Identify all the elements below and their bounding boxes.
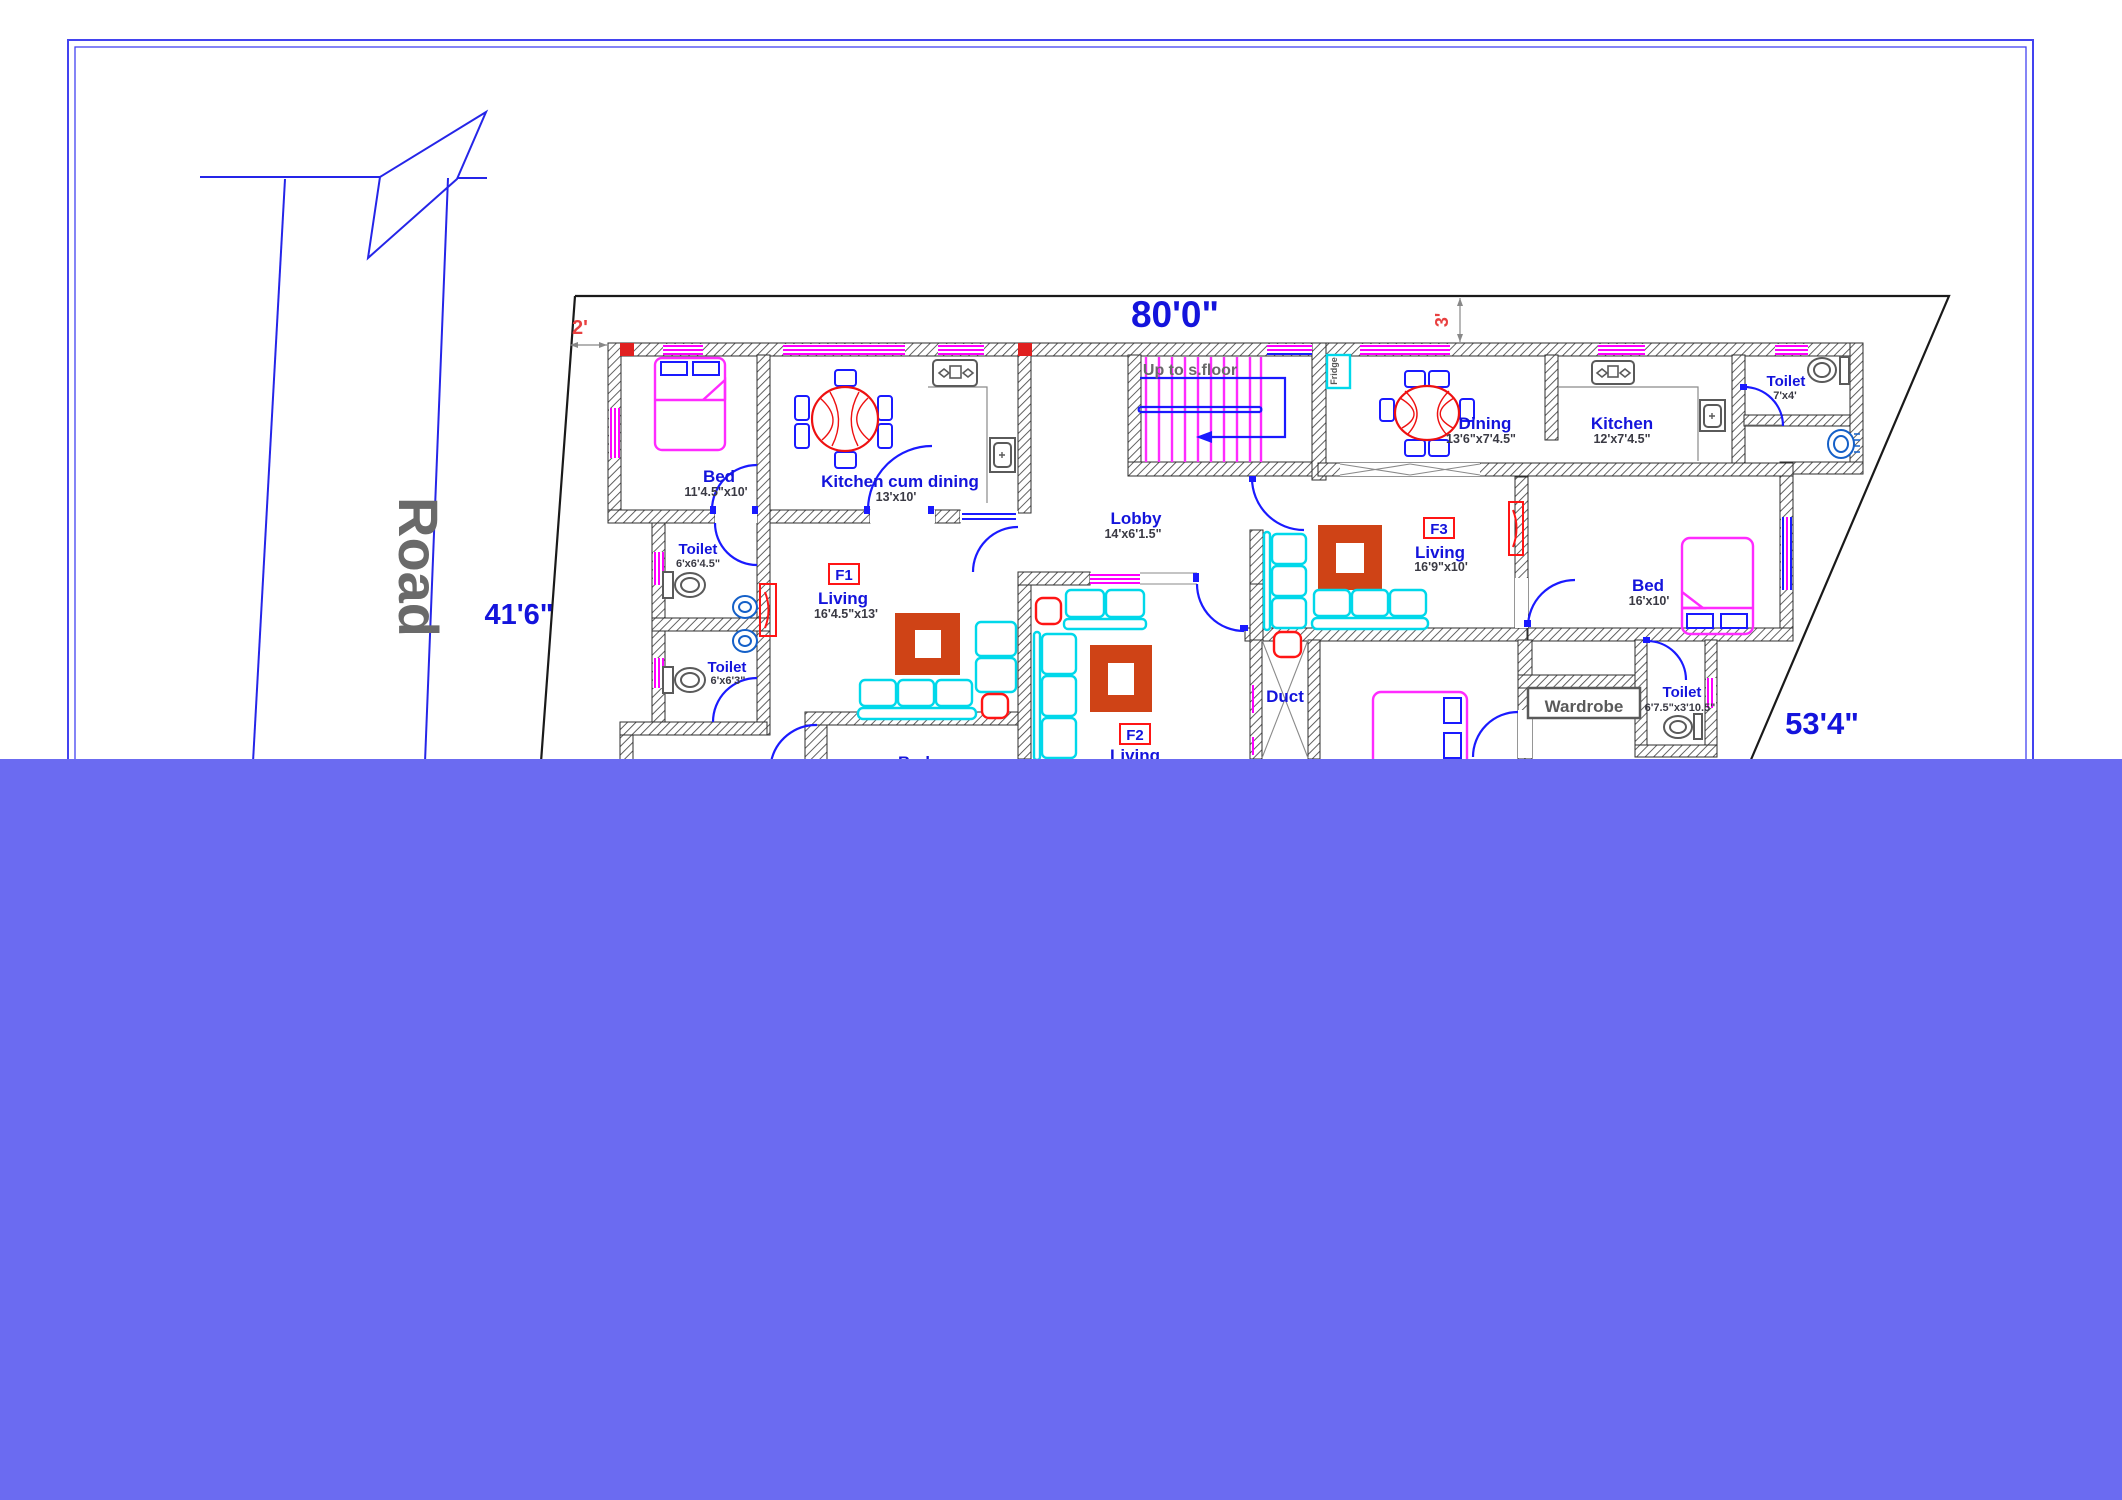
living-f1-furniture (858, 613, 1016, 719)
side-table-icon (982, 694, 1008, 718)
dim-setback-top: 3' (1432, 313, 1452, 327)
blue-overlay-panel (0, 759, 2122, 1500)
room-size: 16'9"x10' (1414, 560, 1468, 574)
window-sill-icon (960, 511, 1018, 522)
sink-icon (1700, 400, 1725, 431)
stove-icon (1592, 361, 1634, 384)
room-size: 13'6"x7'4.5" (1446, 432, 1516, 446)
dim-plot-left: 41'6" (484, 599, 553, 631)
room-label: Duct (1266, 687, 1304, 706)
room-size: 11'4.5"x10' (684, 485, 747, 499)
room-label: Kitchen (1591, 414, 1653, 433)
room-label: Toilet (1663, 684, 1702, 701)
column-marker (620, 343, 634, 356)
door-arc (1197, 584, 1244, 631)
dim-plot-top: 80'0" (1131, 294, 1219, 335)
stair-label: Up to s.floor (1143, 362, 1237, 379)
window-icon (1775, 344, 1808, 355)
room-size: 13'x10' (876, 490, 917, 504)
room-size: 14'x6'1.5" (1104, 527, 1161, 541)
door-arc (1252, 478, 1304, 530)
dim-setback-left: 2' (572, 317, 588, 339)
room-size: 7'x4' (1773, 390, 1797, 402)
toilet-icon (663, 667, 705, 693)
room-size: 6'x6'4.5" (676, 558, 720, 570)
door-arc (1473, 712, 1518, 757)
floor-plan-drawing: Road 80'0" 41'6" 53'4" 2' 3' (0, 0, 2122, 1500)
room-label: Kitchen cum dining (821, 472, 979, 491)
door-arc (1528, 580, 1575, 627)
room-label: Bed (1632, 576, 1664, 595)
road-symbol (200, 112, 487, 762)
dining-table-icon (795, 370, 892, 468)
flat-badge-f1: F1 (829, 564, 859, 584)
room-label: Bed (703, 467, 735, 486)
room-label: Living (818, 589, 868, 608)
bed-icon (655, 358, 725, 450)
flat-label: F1 (835, 567, 853, 584)
toilet-icon (663, 572, 705, 598)
door-arc (1647, 641, 1686, 680)
room-label: Toilet (708, 659, 747, 676)
room-size: 12'x7'4.5" (1593, 432, 1650, 446)
flat-label: F3 (1430, 521, 1448, 538)
flat-badge-f3: F3 (1424, 518, 1454, 538)
room-label: Toilet (679, 541, 718, 558)
window-icon (663, 344, 703, 355)
road-label: Road (387, 497, 450, 637)
road-break-icon (368, 112, 486, 258)
window-icon (609, 408, 620, 458)
room-label: Wardrobe (1545, 697, 1624, 716)
toilet-icon (1808, 357, 1849, 384)
window-icon (1090, 573, 1140, 584)
room-size: 6'x6'3" (711, 675, 746, 687)
door-arc (973, 527, 1018, 572)
flat-badge-f2: F2 (1120, 724, 1150, 744)
cad-canvas: Road 80'0" 41'6" 53'4" 2' 3' (0, 0, 2122, 1500)
sink-icon (990, 438, 1015, 472)
room-size: 6'7.5"x3'10.5" (1645, 702, 1716, 714)
bed-icon (1682, 538, 1753, 634)
staircase: Up to s.floor (1139, 357, 1285, 462)
room-label: Dining (1459, 414, 1512, 433)
window-icon (1267, 344, 1312, 355)
flat-label: F2 (1126, 727, 1144, 744)
door-arc (715, 523, 757, 565)
room-size: 16'x10' (1629, 594, 1670, 608)
window-icon (1598, 344, 1645, 355)
side-table-icon (1274, 632, 1301, 657)
window-icon (783, 344, 905, 355)
toilet-icon (1664, 714, 1702, 739)
room-label: Toilet (1767, 373, 1806, 390)
dim-plot-right: 53'4" (1785, 706, 1859, 741)
window-icon (1781, 517, 1792, 590)
room-label: Lobby (1111, 509, 1163, 528)
window-icon (1360, 344, 1450, 355)
window-icon (938, 344, 984, 355)
stove-icon (933, 360, 977, 386)
fridge-label: Fridge (1329, 357, 1339, 385)
room-size: 16'4.5"x13' (814, 607, 878, 621)
side-table-icon (1036, 598, 1061, 624)
column-marker (1018, 343, 1032, 356)
